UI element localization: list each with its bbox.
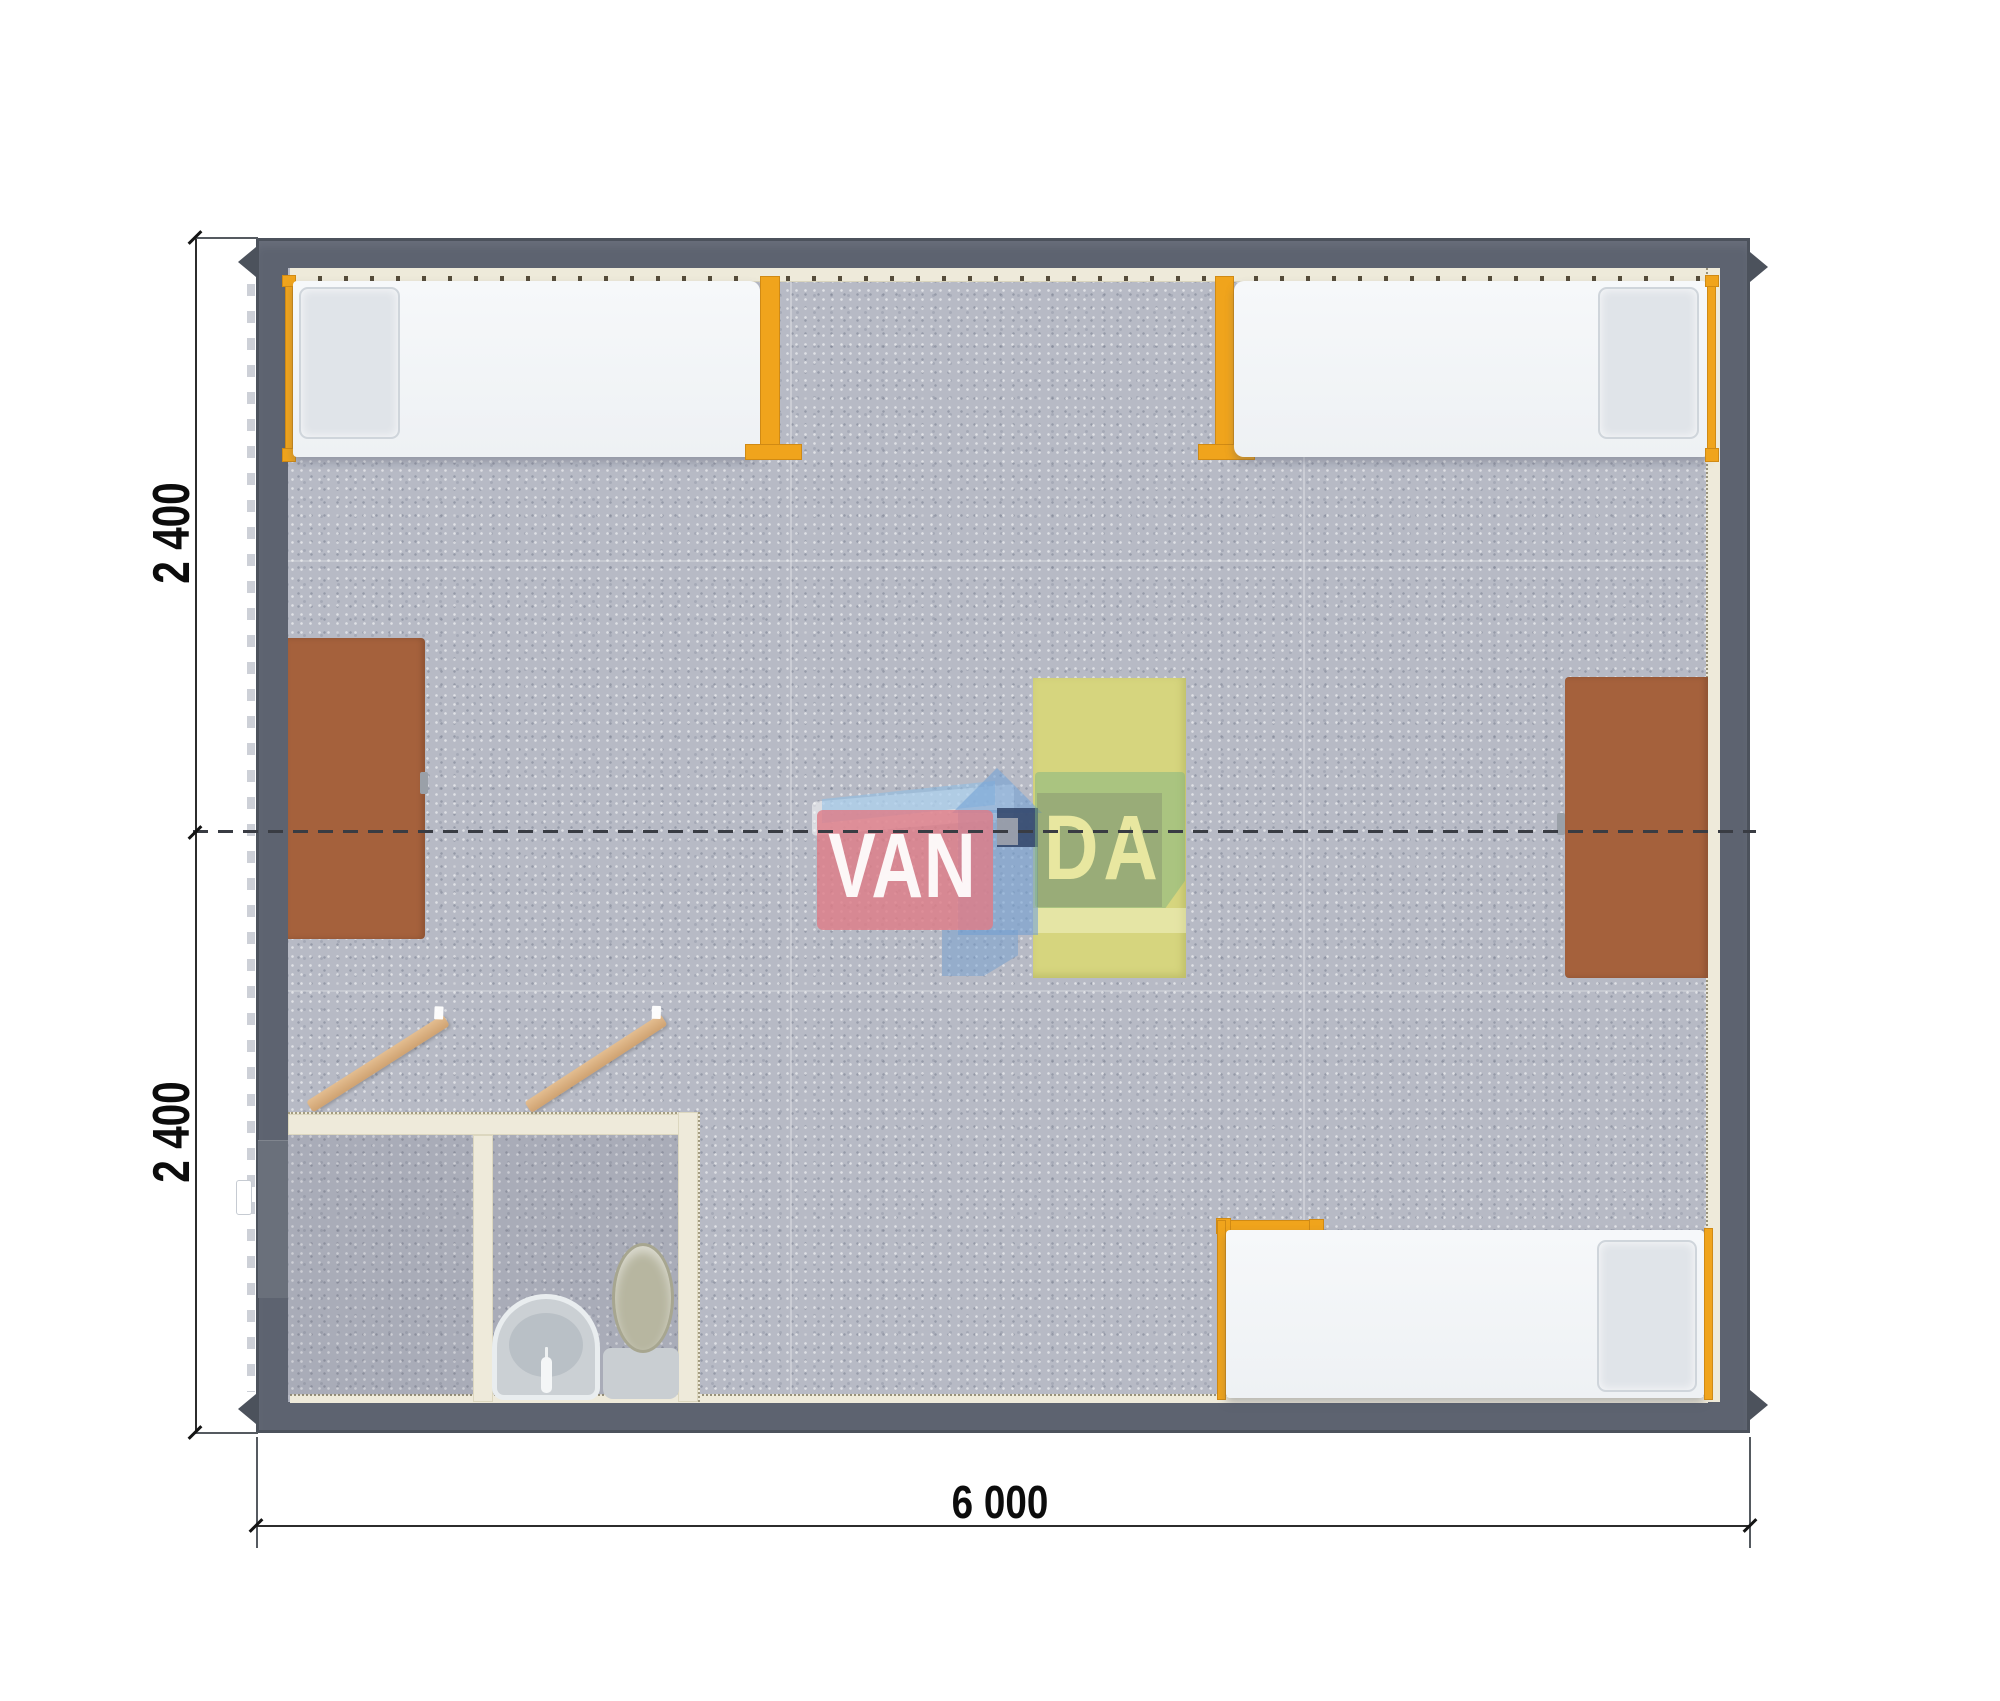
corner-fitting-icon xyxy=(238,247,256,277)
corner-fitting-icon xyxy=(238,1394,256,1424)
bed-top-right xyxy=(1198,276,1720,462)
module-separation-line xyxy=(193,830,1756,833)
dimension-label-left-bottom: 2 400 xyxy=(142,1081,202,1183)
toilet-icon xyxy=(612,1243,674,1353)
watermark-text-da: DA xyxy=(1044,802,1163,894)
bathroom-wall-horizontal xyxy=(288,1112,700,1135)
bed-rail xyxy=(1215,276,1234,460)
bed-top-left xyxy=(285,276,802,462)
pillow xyxy=(1597,1240,1697,1392)
entrance-door-handle-icon xyxy=(236,1180,252,1215)
dimension-line-left xyxy=(195,237,197,1433)
bed-corner-post xyxy=(1705,448,1719,462)
door-tip-icon xyxy=(434,1006,444,1019)
toilet-base xyxy=(603,1348,679,1399)
bathroom-wall-divider xyxy=(473,1135,493,1402)
pillow xyxy=(299,287,400,439)
dimension-label-bottom: 6 000 xyxy=(952,1475,1049,1529)
dimension-label-left-top: 2 400 xyxy=(142,482,202,584)
door-tip-icon xyxy=(652,1006,661,1019)
pillow xyxy=(1598,287,1699,439)
corner-fitting-icon xyxy=(1750,1390,1768,1420)
bathroom-left-room xyxy=(288,1135,473,1395)
bed-rail xyxy=(760,276,780,460)
watermark-text-van: VAN xyxy=(828,820,977,912)
bed-foot-bar xyxy=(745,444,802,460)
desk-left xyxy=(288,638,425,939)
table-highlight xyxy=(1033,908,1186,933)
sink-icon xyxy=(492,1294,600,1400)
entrance-door xyxy=(258,1140,288,1298)
floor-plan: VAN DA 2 400 2 400 6 000 xyxy=(0,0,2000,1701)
corner-fitting-icon xyxy=(1750,252,1768,282)
bed-bottom-right xyxy=(1217,1218,1715,1400)
bed-corner-post xyxy=(1705,275,1719,287)
desk-right xyxy=(1565,677,1708,978)
carpet-seam xyxy=(288,990,1720,992)
desk-handle-icon xyxy=(420,772,428,794)
carpet-seam xyxy=(288,560,1720,562)
extension-line xyxy=(195,1432,258,1434)
logo-house-roof-icon xyxy=(952,768,1042,813)
extension-line xyxy=(195,237,258,239)
sink-faucet xyxy=(541,1357,552,1393)
extension-line xyxy=(256,1437,258,1548)
extension-line xyxy=(1749,1437,1751,1548)
bed-rail xyxy=(1707,278,1716,460)
wall-edge-dashes xyxy=(247,284,255,1392)
bed-rail xyxy=(1217,1220,1226,1400)
bed-rail xyxy=(1704,1228,1713,1400)
bathroom-wall-right xyxy=(678,1112,700,1402)
bed-rail xyxy=(285,278,293,460)
